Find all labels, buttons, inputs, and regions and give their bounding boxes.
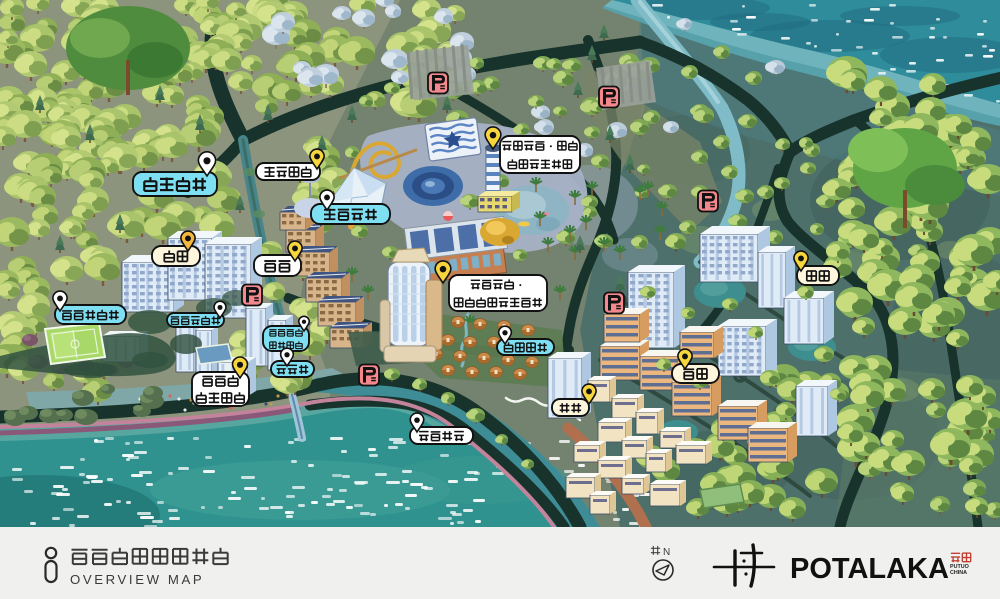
svg-text:N: N: [663, 547, 670, 558]
svg-text:OVERVIEW MAP: OVERVIEW MAP: [70, 572, 204, 587]
svg-text:CHINA: CHINA: [950, 570, 967, 576]
svg-text:POTALAKA: POTALAKA: [790, 553, 949, 585]
